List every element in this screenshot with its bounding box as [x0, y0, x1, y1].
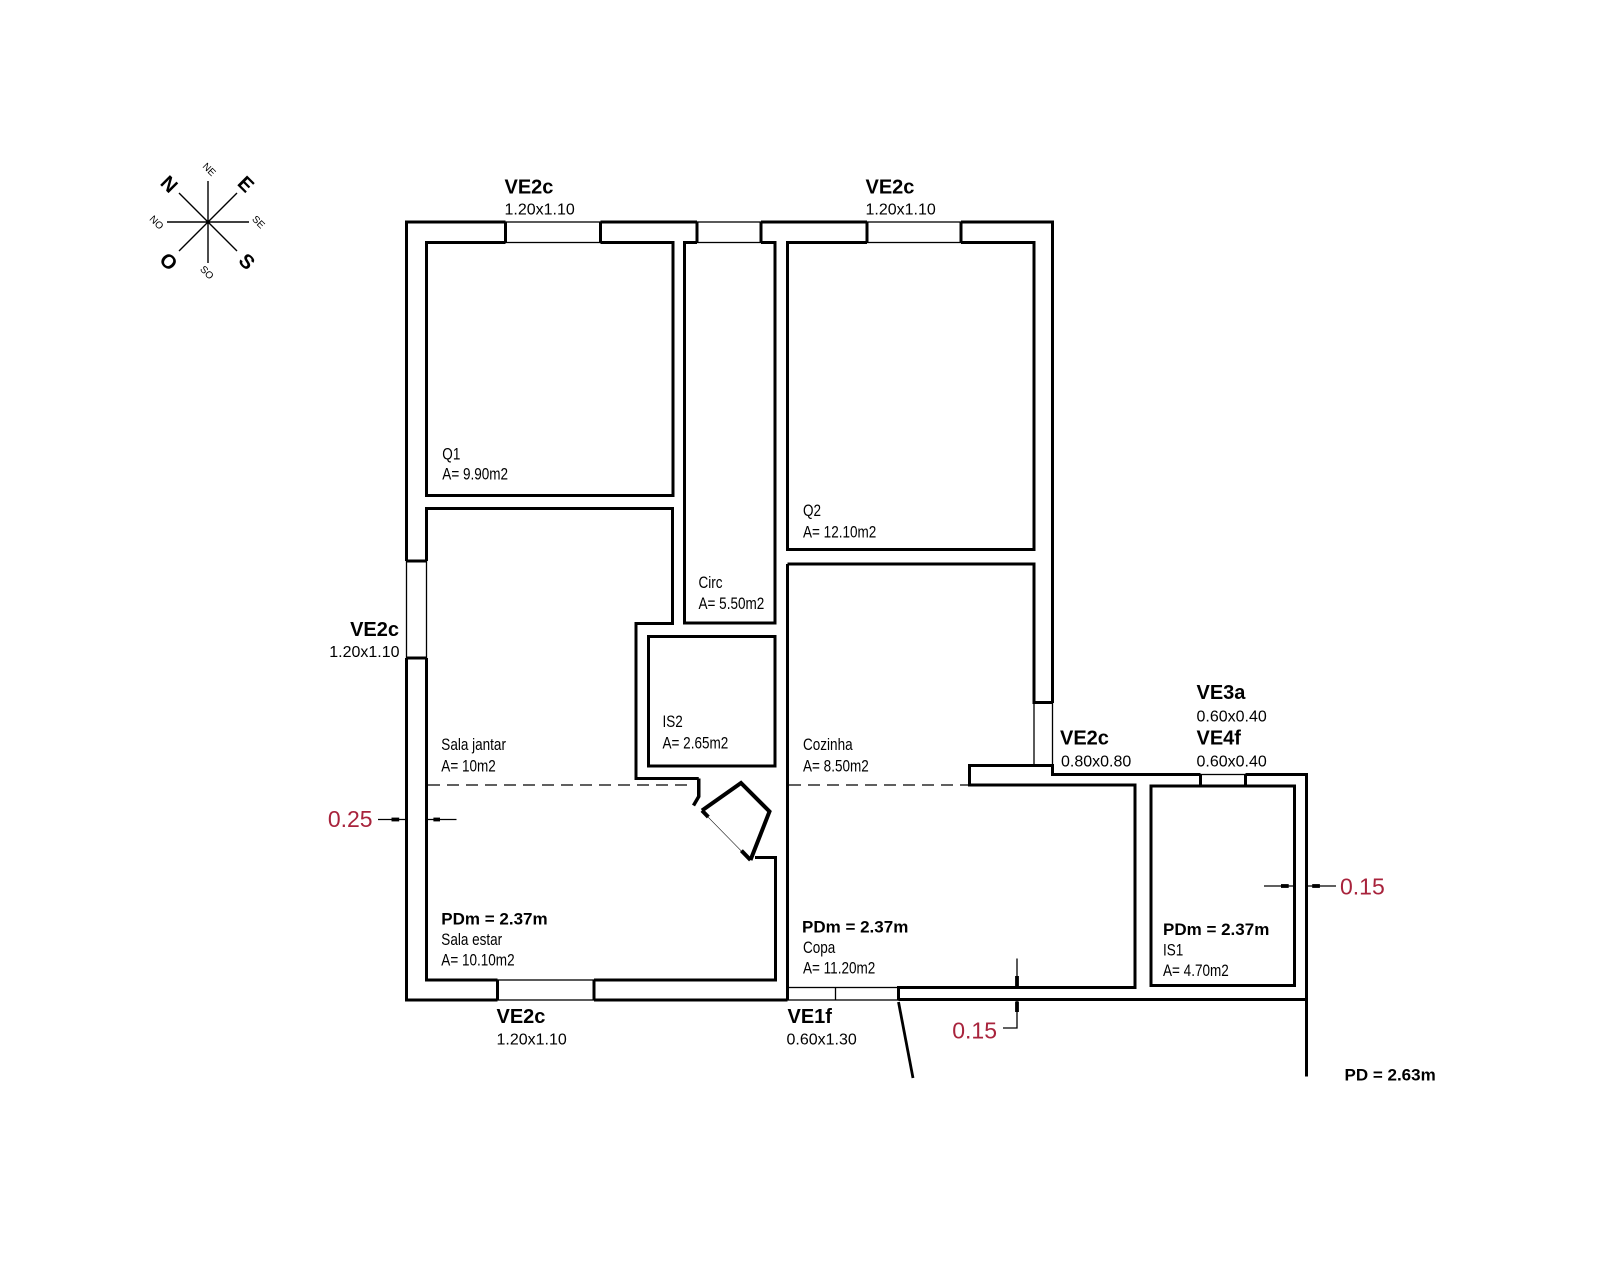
svg-text:1.20x1.10: 1.20x1.10 — [866, 202, 936, 219]
svg-text:PDm = 2.37m: PDm = 2.37m — [441, 910, 547, 929]
svg-text:VE2c: VE2c — [1060, 728, 1109, 750]
svg-text:Q2: Q2 — [803, 502, 821, 521]
svg-text:0.80x0.80: 0.80x0.80 — [1061, 754, 1131, 771]
svg-text:VE2c: VE2c — [505, 177, 554, 199]
svg-text:1.20x1.10: 1.20x1.10 — [497, 1032, 567, 1049]
svg-text:A= 9.90m2: A= 9.90m2 — [442, 465, 508, 484]
svg-text:A= 10m2: A= 10m2 — [441, 757, 496, 776]
svg-text:0.60x0.40: 0.60x0.40 — [1197, 754, 1267, 771]
svg-text:Copa: Copa — [803, 939, 836, 958]
svg-text:0.15: 0.15 — [1340, 874, 1385, 900]
svg-text:PDm = 2.37m: PDm = 2.37m — [802, 918, 908, 937]
svg-text:VE4f: VE4f — [1197, 728, 1242, 750]
svg-text:Sala estar: Sala estar — [441, 931, 502, 950]
svg-text:Sala jantar: Sala jantar — [441, 736, 506, 755]
svg-text:Q1: Q1 — [442, 445, 460, 464]
svg-text:A= 10.10m2: A= 10.10m2 — [441, 951, 514, 970]
svg-text:VE2c: VE2c — [350, 619, 399, 641]
svg-text:1.20x1.10: 1.20x1.10 — [505, 202, 575, 219]
svg-text:VE1f: VE1f — [788, 1006, 833, 1028]
svg-text:VE3a: VE3a — [1197, 682, 1247, 704]
svg-text:IS1: IS1 — [1163, 941, 1183, 960]
svg-text:1.20x1.10: 1.20x1.10 — [329, 644, 399, 661]
svg-text:0.60x1.30: 0.60x1.30 — [787, 1032, 857, 1049]
svg-text:0.25: 0.25 — [328, 806, 373, 832]
svg-text:IS2: IS2 — [663, 713, 683, 732]
svg-text:A= 11.20m2: A= 11.20m2 — [803, 959, 875, 978]
svg-text:PD = 2.63m: PD = 2.63m — [1345, 1066, 1436, 1085]
svg-text:A= 8.50m2: A= 8.50m2 — [803, 757, 869, 776]
svg-text:Circ: Circ — [699, 574, 723, 593]
svg-text:A= 4.70m2: A= 4.70m2 — [1163, 962, 1229, 981]
svg-text:VE2c: VE2c — [866, 177, 915, 199]
svg-text:VE2c: VE2c — [497, 1006, 546, 1028]
svg-text:PDm = 2.37m: PDm = 2.37m — [1163, 920, 1269, 939]
svg-text:A= 2.65m2: A= 2.65m2 — [663, 734, 729, 753]
svg-text:Cozinha: Cozinha — [803, 736, 853, 755]
svg-text:0.60x0.40: 0.60x0.40 — [1197, 709, 1267, 726]
svg-text:A= 12.10m2: A= 12.10m2 — [803, 523, 876, 542]
svg-text:0.15: 0.15 — [952, 1018, 997, 1044]
svg-text:A= 5.50m2: A= 5.50m2 — [699, 595, 765, 614]
